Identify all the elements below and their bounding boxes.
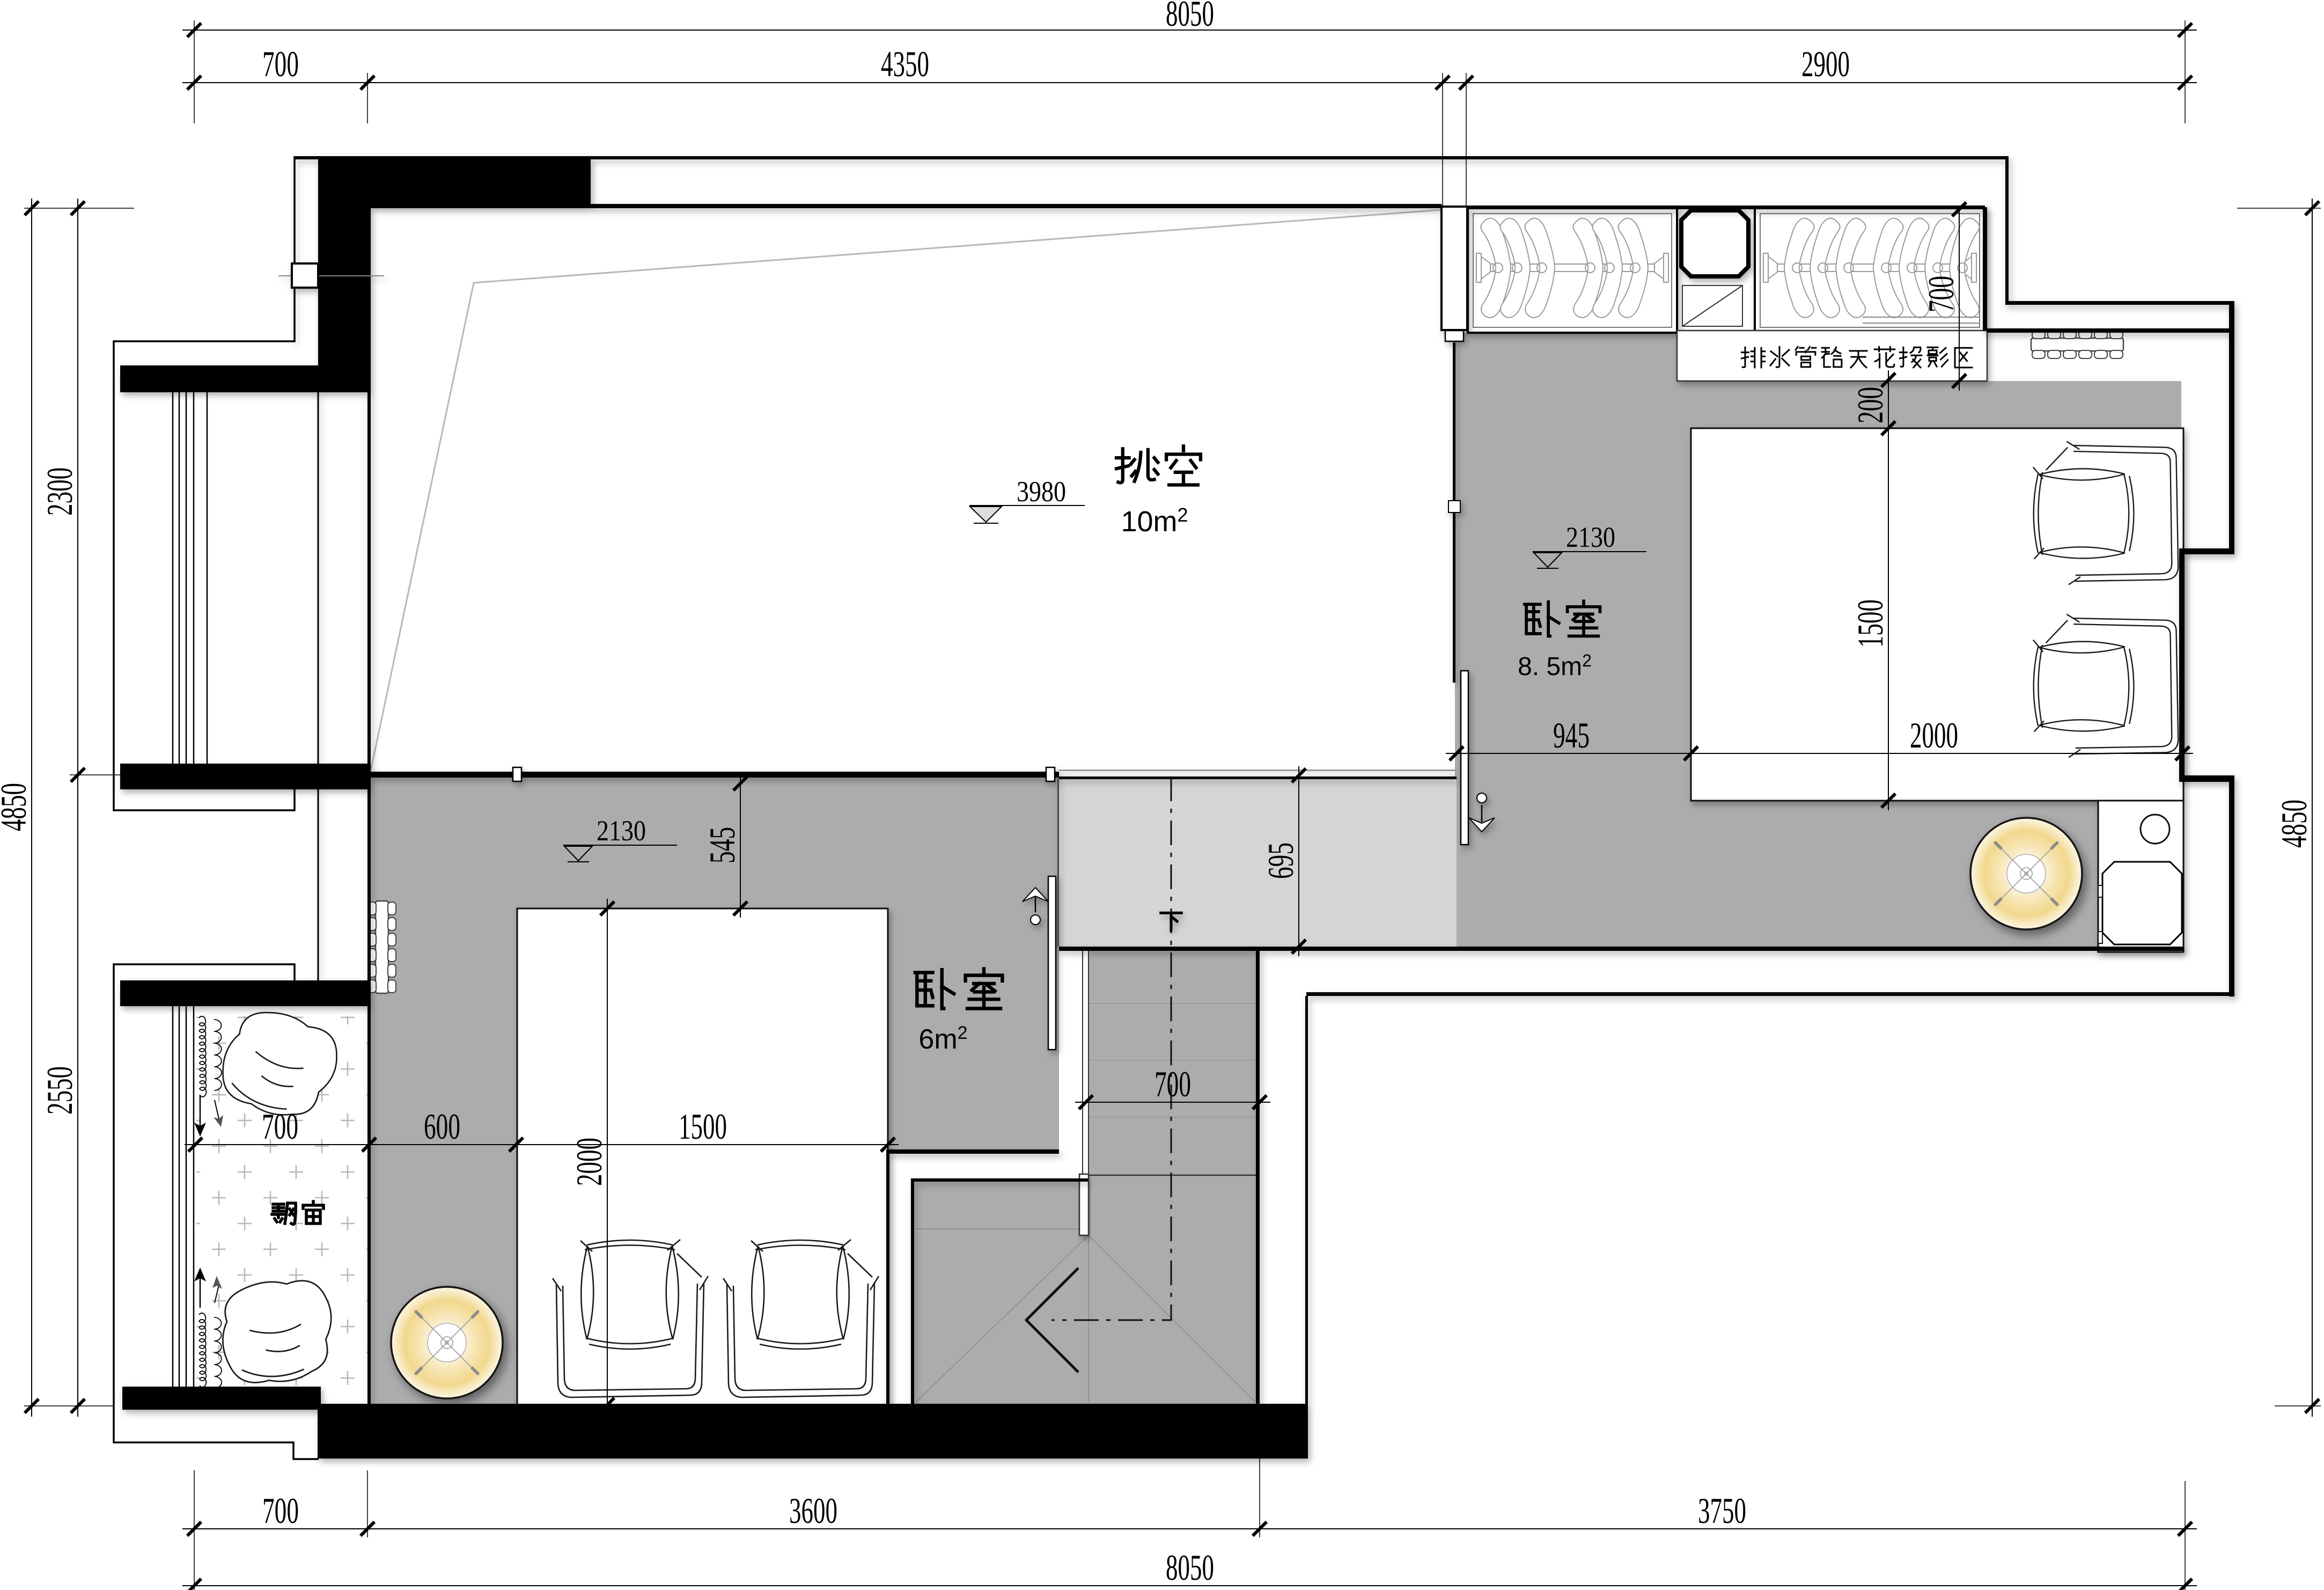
svg-text:10m2: 10m2 (1121, 504, 1188, 538)
svg-text:2000: 2000 (1910, 715, 1958, 756)
svg-text:600: 600 (424, 1106, 460, 1147)
svg-text:4850: 4850 (2274, 800, 2314, 848)
svg-text:2900: 2900 (1801, 43, 1850, 84)
svg-text:2130: 2130 (597, 815, 646, 847)
svg-text:700: 700 (1154, 1064, 1191, 1104)
svg-text:2130: 2130 (1566, 521, 1615, 553)
svg-text:3980: 3980 (1017, 475, 1066, 508)
svg-text:8050: 8050 (1166, 1547, 1214, 1588)
svg-text:945: 945 (1553, 715, 1590, 756)
svg-text:2300: 2300 (39, 467, 80, 516)
svg-text:700: 700 (262, 1106, 298, 1147)
svg-text:4850: 4850 (0, 783, 34, 831)
svg-text:3750: 3750 (1698, 1490, 1746, 1531)
svg-text:545: 545 (702, 827, 742, 863)
svg-text:700: 700 (1921, 276, 1961, 312)
svg-text:695: 695 (1260, 842, 1301, 879)
svg-text:2000: 2000 (569, 1138, 609, 1186)
svg-text:8. 5m2: 8. 5m2 (1518, 651, 1592, 681)
svg-text:8050: 8050 (1166, 0, 1214, 34)
svg-text:700: 700 (262, 1490, 299, 1531)
svg-text:200: 200 (1850, 387, 1891, 423)
svg-text:3600: 3600 (789, 1490, 837, 1531)
svg-text:1500: 1500 (679, 1106, 727, 1147)
svg-text:700: 700 (262, 43, 299, 84)
svg-text:2550: 2550 (39, 1066, 80, 1115)
svg-text:4350: 4350 (881, 43, 929, 84)
svg-text:1500: 1500 (1850, 599, 1891, 648)
